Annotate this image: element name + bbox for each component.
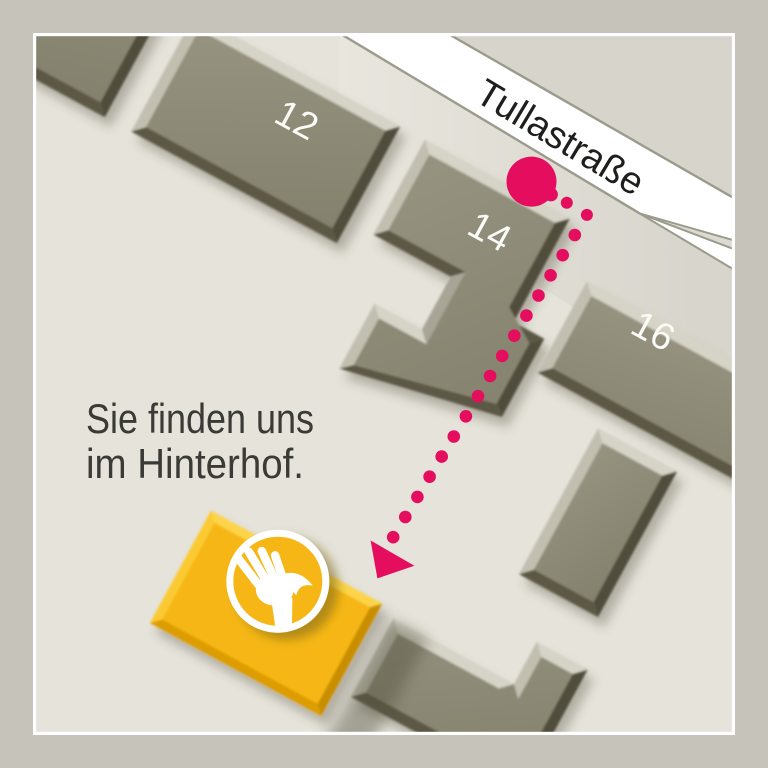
svg-text:Sie finden uns: Sie finden uns	[86, 395, 314, 442]
svg-text:im Hinterhof.: im Hinterhof.	[86, 440, 304, 487]
